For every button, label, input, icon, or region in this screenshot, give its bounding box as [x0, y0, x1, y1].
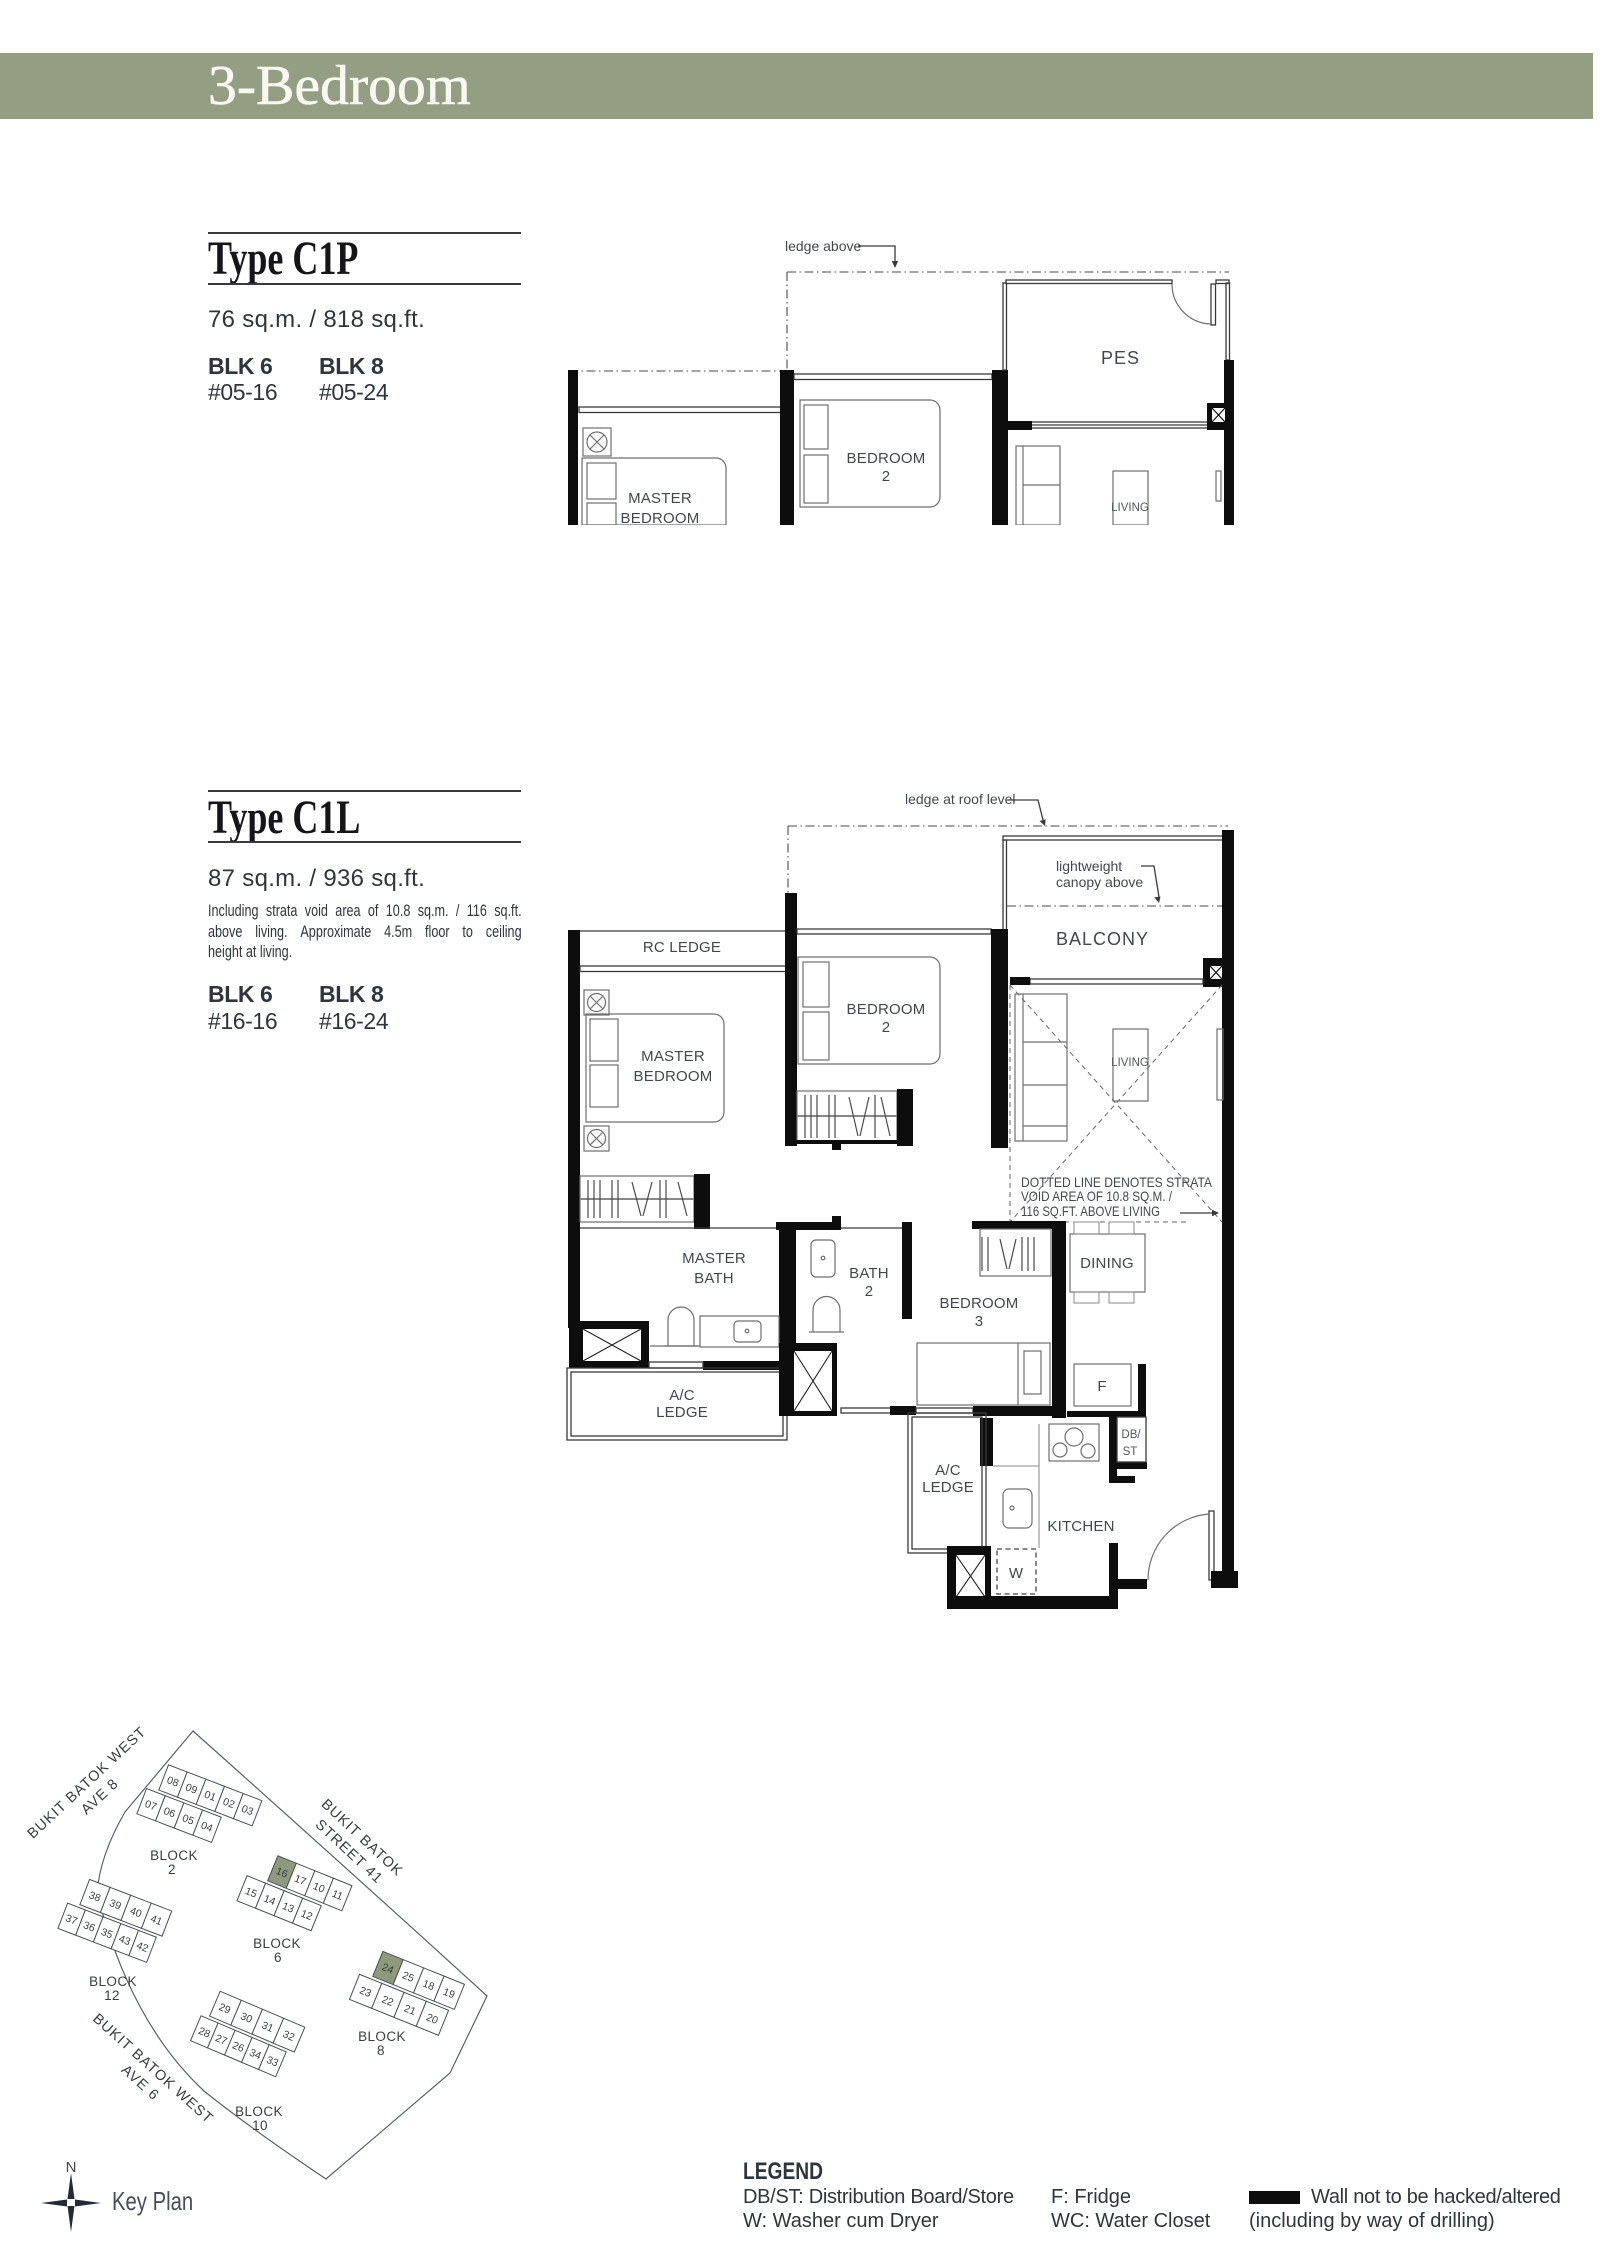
svg-text:8: 8 [377, 2043, 385, 2058]
svg-text:BLOCK: BLOCK [235, 2104, 283, 2119]
svg-text:ledge above: ledge above [785, 238, 862, 254]
svg-text:ledge at roof level: ledge at roof level [905, 791, 1016, 807]
svg-text:BATH: BATH [849, 1265, 889, 1282]
svg-text:BLOCK: BLOCK [358, 2029, 406, 2044]
svg-text:A/C: A/C [935, 1462, 961, 1479]
svg-text:BALCONY: BALCONY [1056, 929, 1149, 949]
svg-text:BEDROOM: BEDROOM [847, 450, 926, 467]
svg-text:VOID AREA OF 10.8 SQ.M. /: VOID AREA OF 10.8 SQ.M. / [1021, 1188, 1172, 1204]
svg-text:6: 6 [274, 1950, 282, 1965]
svg-text:2: 2 [882, 468, 891, 485]
svg-text:BEDROOM: BEDROOM [634, 1068, 713, 1085]
svg-text:lightweight: lightweight [1056, 858, 1122, 874]
svg-text:BEDROOM: BEDROOM [847, 1001, 926, 1018]
svg-text:MASTER: MASTER [628, 490, 692, 507]
svg-text:LIVING: LIVING [1111, 1057, 1149, 1069]
svg-text:2: 2 [865, 1283, 874, 1300]
svg-text:ST: ST [1123, 1446, 1138, 1458]
svg-text:A/C: A/C [669, 1387, 695, 1404]
svg-text:RC LEDGE: RC LEDGE [643, 939, 721, 956]
svg-text:LEDGE: LEDGE [922, 1479, 974, 1496]
svg-text:BEDROOM: BEDROOM [940, 1295, 1019, 1312]
svg-text:LIVING: LIVING [1111, 502, 1149, 514]
svg-text:BLOCK: BLOCK [89, 1974, 137, 1989]
svg-text:W: W [1009, 1565, 1024, 1582]
svg-text:PES: PES [1101, 348, 1140, 368]
svg-text:MASTER: MASTER [682, 1250, 746, 1267]
svg-text:BLOCK: BLOCK [253, 1936, 301, 1951]
svg-text:BEDROOM: BEDROOM [621, 510, 700, 525]
svg-text:2: 2 [168, 1862, 176, 1877]
svg-text:canopy above: canopy above [1056, 874, 1143, 890]
svg-text:10: 10 [252, 2118, 268, 2133]
svg-text:MASTER: MASTER [641, 1048, 705, 1065]
svg-text:2: 2 [882, 1019, 891, 1036]
svg-text:F: F [1097, 1378, 1106, 1395]
svg-text:LEDGE: LEDGE [656, 1404, 708, 1421]
svg-text:DINING: DINING [1080, 1255, 1134, 1272]
svg-text:KITCHEN: KITCHEN [1047, 1518, 1114, 1535]
svg-text:BUKIT BATOK WEST: BUKIT BATOK WEST [25, 1724, 150, 1842]
svg-text:12: 12 [104, 1988, 120, 2003]
svg-text:116 SQ.FT. ABOVE LIVING: 116 SQ.FT. ABOVE LIVING [1021, 1203, 1160, 1219]
svg-text:DB/: DB/ [1121, 1429, 1141, 1441]
svg-text:BLOCK: BLOCK [150, 1848, 198, 1863]
svg-text:3: 3 [975, 1313, 984, 1330]
svg-text:BATH: BATH [694, 1270, 734, 1287]
